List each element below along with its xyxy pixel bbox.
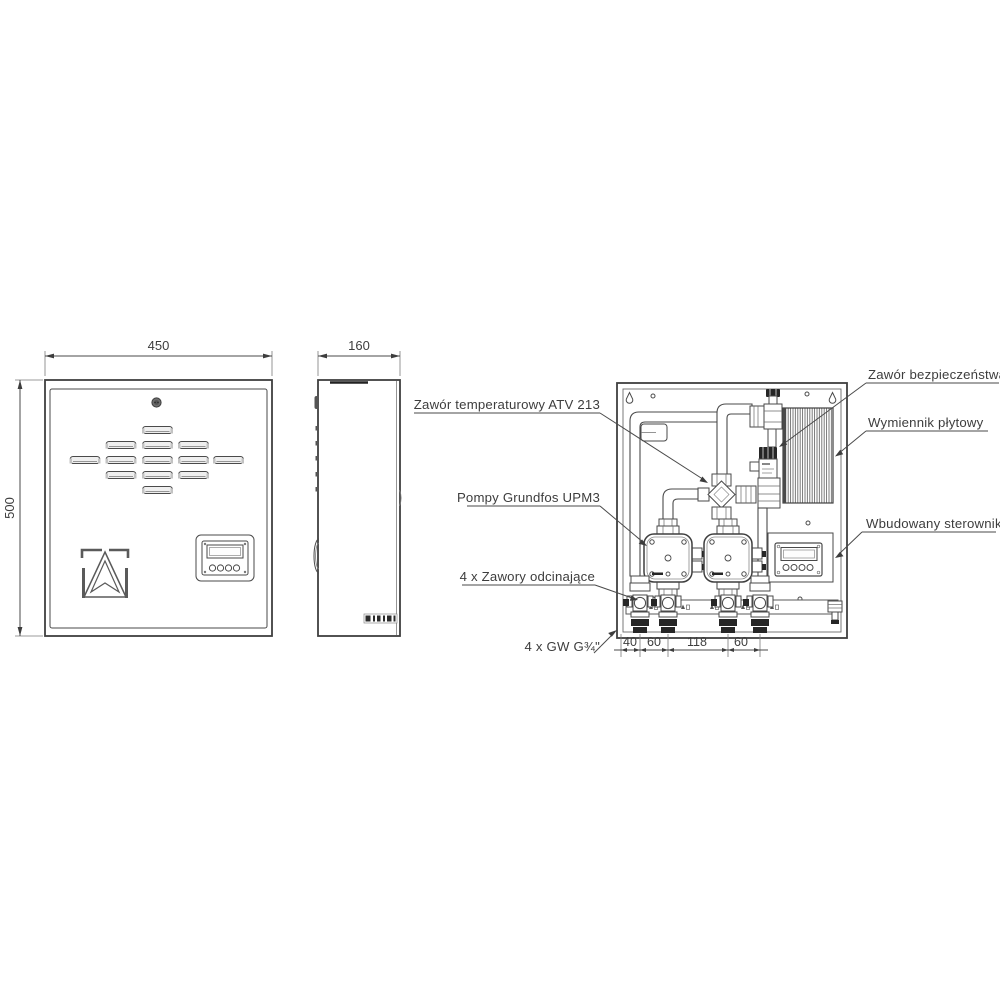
dim-500-text: 500 <box>2 497 17 519</box>
lock-screw-icon <box>152 398 161 407</box>
dimension-side-depth: 160 <box>318 338 400 376</box>
dim-450-text: 450 <box>148 338 170 353</box>
side-view <box>314 380 401 636</box>
barcode-label <box>364 614 397 623</box>
label-safety-valve: Zawór bezpieczeństwa <box>868 367 1000 382</box>
label-thread-connections: 4 x GW G¾" <box>524 639 600 654</box>
dim-160-text: 160 <box>348 338 370 353</box>
built-in-controller <box>768 533 833 582</box>
plate-heat-exchanger <box>783 408 833 503</box>
label-temperature-valve: Zawór temperaturowy ATV 213 <box>414 397 600 412</box>
dim-60b-text: 60 <box>734 635 748 649</box>
ce-label <box>759 459 777 478</box>
dimension-front-height: 500 <box>2 380 43 636</box>
technical-drawing-page: 450 500 160 <box>0 0 1000 1000</box>
dim-60a-text: 60 <box>647 635 661 649</box>
label-controller: Wbudowany sterownik <box>866 516 1000 531</box>
internal-view <box>617 383 847 638</box>
dim-118-text: 118 <box>687 635 707 649</box>
front-controller-display <box>196 535 254 581</box>
side-cabinet-outline <box>318 380 400 636</box>
dimension-front-width: 450 <box>45 338 272 376</box>
front-view <box>45 380 272 636</box>
label-shutoff-valves: 4 x Zawory odcinające <box>460 569 595 584</box>
heating-unit-drawing: 450 500 160 <box>0 0 1000 1000</box>
dim-40-text: 40 <box>623 635 637 649</box>
label-heat-exchanger: Wymiennik płytowy <box>868 415 984 430</box>
label-pumps: Pompy Grundfos UPM3 <box>457 490 600 505</box>
